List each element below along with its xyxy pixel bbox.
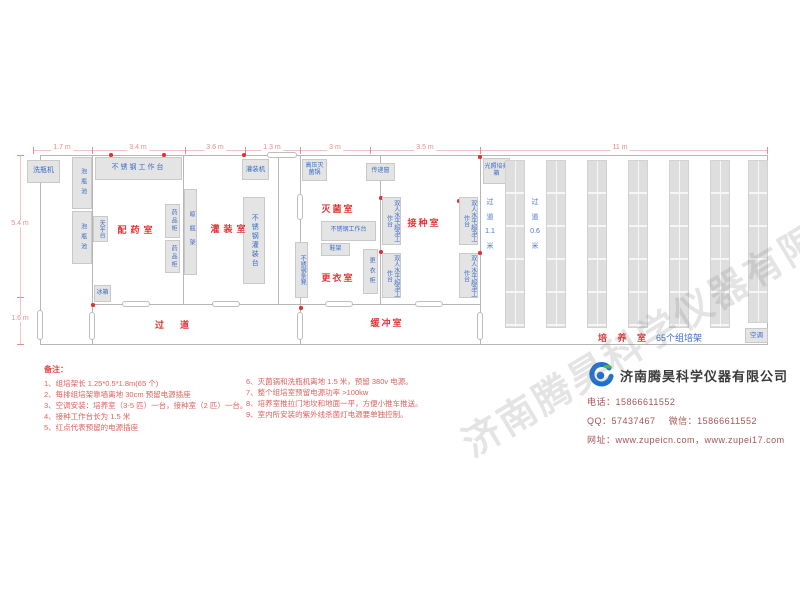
- soak-pool-box: 泡瓶池: [72, 211, 92, 264]
- company-logo-icon: [587, 362, 614, 389]
- power-outlet-dot: [242, 153, 246, 157]
- dimension-tick: [33, 147, 34, 154]
- note-item: 2、每排组培架靠墙离地 30cm 预留电源插座: [44, 389, 247, 400]
- website-urls: www.zupeicn.com，www.zupei17.com: [616, 435, 785, 445]
- dim-label-11m: 11 m: [610, 144, 629, 151]
- wall-bottom: [40, 344, 768, 345]
- qq-wechat-line: QQ：57437467 微信：15866611552: [587, 414, 788, 427]
- clean-bench-box: 双人水平超净工作台: [459, 197, 478, 245]
- soak-pool-box: 泡瓶池: [72, 157, 92, 209]
- room-label-preparation: 配药室: [102, 223, 172, 236]
- dimension-tick: [17, 344, 24, 345]
- room-label-buffer: 缓冲室: [352, 316, 422, 329]
- dimension-tick: [17, 297, 24, 298]
- room-label-inoculation: 接种室: [389, 216, 459, 229]
- autoclave-box: 高压灭菌锅: [302, 159, 327, 181]
- bottle-washer-box: 洗瓶机: [27, 160, 60, 183]
- phone-label: 电话：: [587, 397, 616, 407]
- dim-label-3-4m: 3.4 m: [127, 144, 149, 151]
- culture-rack-column: [710, 160, 730, 328]
- sliding-door: [477, 312, 483, 340]
- dim-label-1-7m: 1.7 m: [51, 144, 73, 151]
- culture-rack-column: [628, 160, 648, 328]
- notes-header: 备注：: [44, 364, 247, 375]
- room-label-sterilization: 灭菌室: [303, 202, 373, 215]
- ss-filling-table-box: 不锈钢灌装台: [243, 197, 265, 284]
- dimension-tick: [92, 147, 93, 154]
- power-outlet-dot: [162, 153, 166, 157]
- ac-box: 空调: [745, 328, 768, 343]
- power-outlet-dot: [91, 303, 95, 307]
- filling-machine-box: 灌装机: [242, 159, 269, 180]
- note-item: 4、接种工作台长为 1.5 米: [44, 411, 247, 422]
- wechat-label: 微信：: [669, 416, 698, 426]
- dimension-tick: [480, 147, 481, 154]
- sliding-door: [267, 152, 297, 158]
- notes-block: 备注： 1、组培架长 1.25*0.5*1.8m(65 个) 2、每排组培架靠墙…: [44, 364, 247, 433]
- aisle-width-label-1-1m: 过 道 1.1 米: [483, 196, 497, 255]
- sliding-door: [122, 301, 150, 307]
- sliding-door: [325, 301, 353, 307]
- room-label-filling: 灌装室: [195, 222, 265, 235]
- note-item: 1、组培架长 1.25*0.5*1.8m(65 个): [44, 378, 247, 389]
- qq-number: 57437467: [612, 416, 656, 426]
- dimension-tick: [185, 147, 186, 154]
- clean-bench-box: 双人水平超净工作台: [382, 253, 401, 298]
- power-outlet-dot: [478, 251, 482, 255]
- dim-label-3m: 3 m: [327, 144, 343, 151]
- dim-label-1-3m: 1.3 m: [261, 144, 283, 151]
- room-label-corridor: 过道: [130, 318, 230, 331]
- pass-window-box: 传递窗: [366, 163, 395, 181]
- note-item: 5、红点代表预留的电源插座: [44, 422, 247, 433]
- website-line: 网址：www.zupeicn.com，www.zupei17.com: [587, 433, 788, 446]
- culture-rack-count: 65个组培架: [656, 333, 702, 343]
- dimension-tick: [370, 147, 371, 154]
- floor-plan-page: 1.7 m 3.4 m 3.6 m 1.3 m 3 m 3.5 m 11 m 5…: [0, 0, 800, 600]
- culture-rack-column: [669, 160, 689, 328]
- note-item: 3、空调安装：培养室（3-5 匹）一台，接种室（2 匹）一台。: [44, 400, 247, 411]
- note-item: 9、室内所安装的紫外线杀菌灯电源要单独控制。: [246, 409, 423, 420]
- culture-room-name: 培 养 室: [598, 333, 650, 343]
- shoe-rack-box: 鞋架: [321, 243, 350, 256]
- website-label: 网址：: [587, 435, 616, 445]
- sliding-door: [37, 310, 43, 340]
- clean-bench-box: 双人水平超净工作台: [459, 253, 478, 298]
- company-header: 济南腾昊科学仪器有限公司: [587, 362, 788, 389]
- note-item: 6、灭菌锅和洗瓶机离地 1.5 米，预留 380v 电源。: [246, 376, 423, 387]
- dim-label-3-5m: 3.5 m: [414, 144, 436, 151]
- dimension-tick: [17, 155, 24, 156]
- culture-rack-column: [748, 160, 768, 323]
- phone-line: 电话：15866611552: [587, 395, 788, 408]
- culture-rack-column: [505, 160, 525, 328]
- aisle-width-label-0-6m: 过 道 0.6 米: [528, 196, 542, 255]
- qq-label: QQ：: [587, 416, 612, 426]
- notes-block-col2: 6、灭菌锅和洗瓶机离地 1.5 米，预留 380v 电源。 7、整个组培室预留电…: [246, 376, 423, 420]
- dimension-tick: [767, 147, 768, 154]
- ss-worktable-box: 不锈钢工作台: [95, 157, 182, 180]
- note-item: 7、整个组培室预留电源功率 >100kw: [246, 387, 423, 398]
- note-item: 8、培养室推拉门地坎和地面一平，方便小推车推送。: [246, 398, 423, 409]
- power-outlet-dot: [478, 155, 482, 159]
- sliding-door: [89, 312, 95, 340]
- company-name: 济南腾昊科学仪器有限公司: [620, 366, 788, 385]
- ss-worktable-box: 不锈钢工作台: [321, 221, 376, 241]
- sliding-door: [297, 312, 303, 340]
- power-outlet-dot: [299, 306, 303, 310]
- medicine-cabinet-box: 药品柜: [165, 240, 180, 273]
- sliding-door: [415, 301, 443, 307]
- wechat-number: 15866611552: [697, 416, 757, 426]
- company-block: 济南腾昊科学仪器有限公司 电话：15866611552 QQ：57437467 …: [587, 362, 788, 446]
- room-label-changing: 更衣室: [303, 271, 373, 284]
- culture-rack-column: [546, 160, 566, 328]
- fridge-box: 冰箱: [94, 285, 111, 302]
- room-label-culture: 培 养 室65个组培架: [560, 331, 740, 344]
- dim-label-3-6m: 3.6 m: [204, 144, 226, 151]
- power-outlet-dot: [109, 153, 113, 157]
- sliding-door: [212, 301, 240, 307]
- dimension-tick: [300, 147, 301, 154]
- dim-label-5-4m: 5.4 m: [11, 220, 29, 227]
- phone-number: 15866611552: [616, 397, 676, 407]
- wall-top: [40, 155, 768, 156]
- wall-interior: [278, 155, 279, 305]
- dim-label-1-6m: 1.6 m: [11, 315, 29, 322]
- culture-rack-column: [587, 160, 607, 328]
- ss-bench-box: 不锈钢条凳: [295, 242, 308, 298]
